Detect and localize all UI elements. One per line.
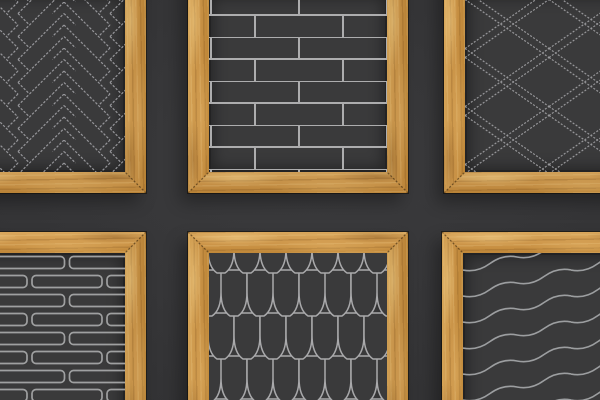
frame-diagonal-wavy-lines — [442, 232, 600, 400]
wood-band-left — [442, 232, 463, 400]
frame-running-bond-planks — [188, 0, 408, 193]
wood-band-bottom — [444, 172, 600, 193]
panel-running-bond-planks — [209, 0, 387, 172]
rounded-brick-pattern — [0, 253, 125, 400]
frame-scalloped-shingles — [188, 232, 408, 400]
wood-band-top — [0, 232, 146, 253]
panel-offset-rounded-bricks — [0, 253, 125, 400]
wood-band-top — [442, 232, 600, 253]
panel-diamond-lattice — [465, 0, 600, 172]
herringbone-pattern — [0, 0, 125, 172]
running-bond-plank-pattern — [209, 0, 387, 172]
diagonal-wave-pattern — [463, 253, 600, 400]
scalloped-shingle-pattern — [209, 253, 387, 400]
wood-band-bottom — [0, 172, 146, 193]
dark-wall-backdrop — [0, 0, 600, 400]
wood-band-right — [387, 0, 408, 193]
wood-band-right — [125, 232, 146, 400]
frame-offset-rounded-bricks — [0, 232, 146, 400]
wood-band-top — [188, 232, 408, 253]
diamond-lattice-pattern — [465, 0, 600, 172]
frame-diamond-lattice — [444, 0, 600, 193]
panel-herringbone — [0, 0, 125, 172]
wood-band-left — [188, 232, 209, 400]
wood-band-left — [188, 0, 209, 193]
wood-band-bottom — [188, 172, 408, 193]
wood-band-right — [125, 0, 146, 193]
panel-scalloped-shingles — [209, 253, 387, 400]
panel-diagonal-wavy-lines — [463, 253, 600, 400]
frame-herringbone — [0, 0, 146, 193]
wood-band-right — [387, 232, 408, 400]
wood-band-left — [444, 0, 465, 193]
